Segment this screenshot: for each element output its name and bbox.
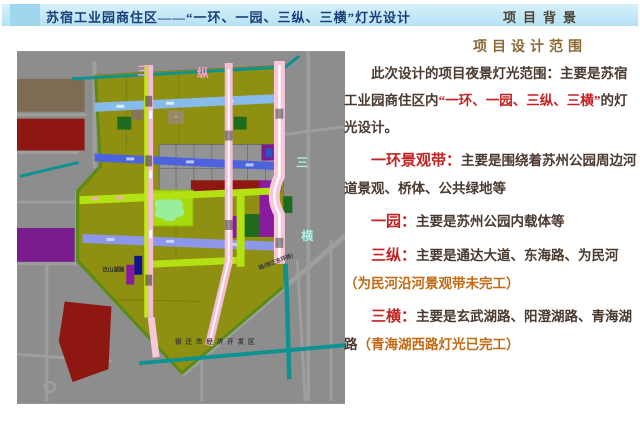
section-title: 项目设计范围 [473,36,587,56]
label-san-heng-1: 三 [296,155,308,169]
item-horizontal-term: 三横： [371,309,416,325]
item-vertical-term: 三纵： [371,248,416,264]
zone-brown [17,79,85,112]
label-san-heng-2: 横 [301,229,313,243]
item-park-desc: 主要是苏州公园内载体等 [416,214,565,229]
zone-green-4 [283,196,292,213]
label-dev-zone: 宿迁市经济开发区 [175,336,258,345]
item-vertical: 三纵：主要是通达大道、东海路、为民河（为民河沿河景观带未完工） [344,242,638,297]
item-park: 一园：主要是苏州公园内载体等 [344,208,638,236]
zone-red-left [17,119,85,151]
item-horizontal: 三横：主要是玄武湖路、阳澄湖路、青海湖路（青海湖西路灯光已完工） [344,303,638,358]
header-accent-square [10,4,40,26]
page-title: 苏宿工业园商住区——“一环、一园、三纵、三横”灯光设计 [46,7,411,26]
item-ring-term: 一环景观带： [371,153,461,169]
header-corner-label: 项目背景 [503,7,583,26]
design-scope-text: 此次设计的项目夜景灯光范围：主要是苏宿工业园商住区内“一环、一园、三纵、三横”的… [344,60,638,364]
header-bar: 苏宿工业园商住区——“一环、一园、三纵、三横”灯光设计 项目背景 [2,4,638,26]
item-vertical-note: （为民河沿河景观带未完工） [344,276,520,291]
item-ring: 一环景观带：主要是围绕着苏州公园周边河道景观、桥体、公共绿地等 [344,147,638,202]
intro-part-highlight: “一环、一园、三纵、三横” [439,93,601,108]
zone-purple-small-2 [126,265,134,285]
zone-green-1 [117,117,131,130]
label-san-zong-2: 纵 [197,66,209,80]
item-park-term: 一园： [371,214,416,230]
zone-purple-left [17,228,75,262]
label-road-small-1: 泛山湖路 [102,266,124,274]
item-horizontal-note: （青海湖西路灯光已完工） [358,337,520,352]
label-san-zong-1: 三 [137,64,149,78]
zone-navy-small [134,256,142,275]
zone-green-3 [244,214,260,237]
zone-blue-inner [265,148,272,157]
intro-paragraph: 此次设计的项目夜景灯光范围：主要是苏宿工业园商住区内“一环、一园、三纵、三横”的… [344,60,638,141]
road-vertical-c [274,61,283,264]
zone-tan-dot [173,114,179,120]
site-map: 三 纵 三 横 宿迁市经济开发区 泛山湖路 路(宿迁东环路) [17,50,345,405]
zone-green-2 [234,117,247,130]
zone-tan-1 [131,109,143,120]
slide: 苏宿工业园商住区——“一环、一园、三纵、三横”灯光设计 项目背景 项目设计范围 [0,0,640,434]
item-vertical-desc: 主要是通达大道、东海路、为民河 [416,248,619,263]
